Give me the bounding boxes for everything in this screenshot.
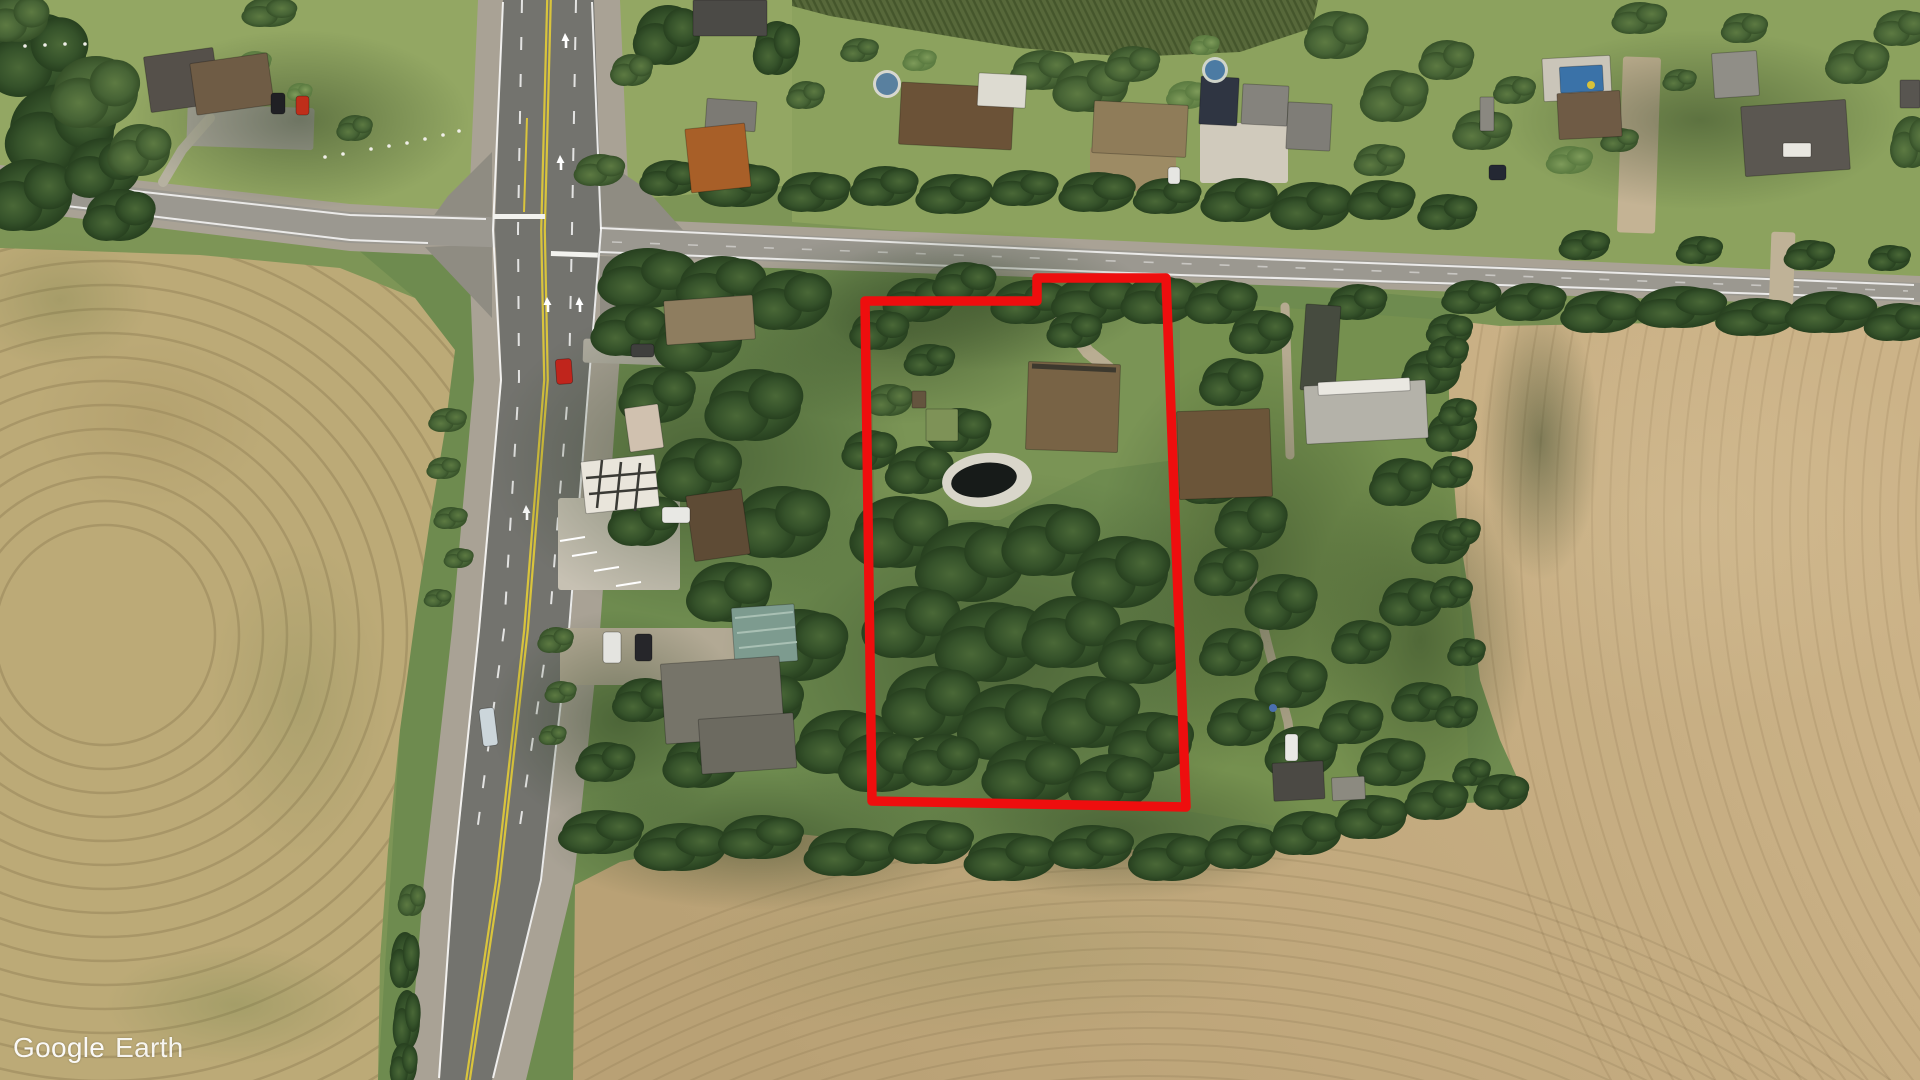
tree bbox=[1567, 147, 1593, 165]
building bbox=[977, 73, 1027, 108]
tree bbox=[810, 174, 851, 200]
tree bbox=[857, 39, 879, 55]
tree bbox=[1086, 827, 1134, 856]
building bbox=[912, 391, 926, 408]
tree bbox=[352, 116, 372, 133]
vehicle bbox=[662, 507, 690, 523]
google-earth-viewport[interactable]: GoogleEarth bbox=[0, 0, 1920, 1080]
vehicle bbox=[1489, 165, 1506, 180]
tree bbox=[653, 370, 696, 406]
tree bbox=[551, 726, 567, 739]
tree bbox=[803, 82, 825, 100]
tree bbox=[918, 50, 937, 64]
fence-post bbox=[43, 43, 47, 47]
tree bbox=[1390, 73, 1428, 107]
tree bbox=[1676, 288, 1728, 315]
tree bbox=[1449, 458, 1473, 479]
tree bbox=[1217, 282, 1258, 311]
tree bbox=[774, 24, 800, 59]
tree bbox=[1581, 232, 1610, 252]
fence-post bbox=[83, 42, 87, 46]
building bbox=[1025, 361, 1120, 452]
tree bbox=[602, 744, 636, 770]
shade-blob bbox=[1480, 300, 1600, 580]
vehicle bbox=[296, 96, 309, 115]
building bbox=[1711, 50, 1759, 98]
tree bbox=[1742, 15, 1768, 35]
tree bbox=[1377, 182, 1415, 208]
tree bbox=[1287, 659, 1328, 693]
tree bbox=[1678, 70, 1697, 84]
tree bbox=[457, 549, 474, 562]
tree bbox=[1129, 48, 1160, 71]
vehicle bbox=[603, 632, 621, 663]
building bbox=[686, 488, 751, 561]
tree bbox=[1223, 550, 1259, 581]
tree bbox=[1228, 630, 1264, 661]
watermark-product: Earth bbox=[115, 1032, 183, 1063]
tree bbox=[1093, 174, 1136, 200]
tree bbox=[775, 490, 830, 537]
tree bbox=[1354, 286, 1388, 309]
tree bbox=[1258, 312, 1294, 341]
building bbox=[1241, 84, 1289, 126]
satellite-map[interactable] bbox=[0, 0, 1920, 1080]
tree bbox=[950, 176, 993, 202]
tree bbox=[410, 886, 426, 907]
tree bbox=[1454, 698, 1478, 719]
tree bbox=[629, 56, 653, 77]
tree bbox=[756, 817, 804, 846]
tree bbox=[1469, 759, 1491, 777]
building bbox=[1559, 65, 1603, 93]
tree bbox=[1433, 782, 1469, 808]
building bbox=[190, 53, 274, 115]
tree bbox=[1459, 519, 1481, 537]
vehicle bbox=[1285, 734, 1298, 761]
tree bbox=[876, 312, 910, 338]
tree bbox=[1235, 180, 1278, 209]
tree bbox=[405, 993, 421, 1032]
tree bbox=[402, 1045, 418, 1074]
tree bbox=[926, 346, 955, 367]
tree bbox=[1498, 776, 1529, 799]
fence-post bbox=[405, 141, 409, 145]
tree bbox=[442, 458, 461, 472]
tree bbox=[1443, 42, 1474, 68]
tree bbox=[1237, 700, 1275, 731]
pool bbox=[1205, 60, 1225, 80]
tree bbox=[1306, 184, 1352, 215]
tree bbox=[724, 565, 772, 604]
tree bbox=[880, 168, 918, 194]
building bbox=[664, 295, 756, 345]
tree bbox=[1387, 740, 1425, 771]
tree bbox=[926, 822, 974, 851]
fence-post bbox=[457, 129, 461, 133]
tree bbox=[1449, 578, 1473, 599]
tree bbox=[1697, 237, 1723, 255]
tree bbox=[1636, 4, 1667, 25]
building bbox=[1741, 99, 1851, 176]
tree bbox=[445, 409, 467, 425]
tree bbox=[1468, 282, 1502, 304]
tree bbox=[1367, 797, 1408, 826]
fence-post bbox=[387, 144, 391, 148]
tree bbox=[136, 127, 172, 161]
tree bbox=[1512, 77, 1536, 95]
building bbox=[1300, 304, 1341, 392]
building bbox=[698, 713, 797, 774]
tree bbox=[1887, 246, 1911, 263]
building bbox=[624, 404, 664, 452]
building bbox=[1176, 408, 1272, 499]
stop-bar bbox=[493, 214, 545, 219]
tree bbox=[115, 192, 156, 226]
tree bbox=[1464, 639, 1486, 657]
pool bbox=[876, 73, 898, 95]
building bbox=[1199, 76, 1239, 126]
tree bbox=[449, 508, 468, 522]
pool bbox=[1269, 704, 1277, 712]
tree bbox=[559, 682, 577, 696]
tree bbox=[1203, 36, 1220, 49]
tree bbox=[1398, 460, 1434, 491]
fence-post bbox=[323, 155, 327, 159]
tree bbox=[90, 60, 140, 107]
building bbox=[1783, 143, 1811, 157]
tree bbox=[1455, 399, 1477, 417]
vehicle bbox=[635, 634, 652, 661]
tree bbox=[887, 386, 913, 407]
fence-post bbox=[423, 137, 427, 141]
tree bbox=[1115, 540, 1170, 587]
tree bbox=[298, 84, 312, 96]
tree bbox=[793, 613, 848, 660]
tree bbox=[1854, 42, 1890, 71]
driveway-pad bbox=[1200, 123, 1288, 183]
tree bbox=[596, 156, 625, 177]
tree bbox=[1444, 196, 1478, 219]
tree bbox=[694, 441, 742, 483]
building bbox=[1331, 776, 1365, 801]
vehicle bbox=[555, 358, 573, 384]
vehicle bbox=[271, 93, 285, 114]
building bbox=[1092, 101, 1189, 158]
building bbox=[685, 123, 751, 193]
tree bbox=[553, 628, 573, 645]
tree bbox=[1806, 242, 1835, 262]
building bbox=[1900, 80, 1920, 108]
tree bbox=[1445, 338, 1469, 359]
tree bbox=[1447, 316, 1473, 337]
tree bbox=[1020, 172, 1058, 195]
building bbox=[1272, 761, 1325, 802]
building bbox=[1286, 102, 1332, 151]
fence-post bbox=[341, 152, 345, 156]
tree bbox=[1358, 622, 1392, 651]
tree bbox=[937, 737, 980, 771]
tree bbox=[1228, 360, 1264, 391]
tree bbox=[1333, 13, 1369, 44]
vehicle bbox=[631, 344, 654, 357]
tree bbox=[1277, 577, 1318, 613]
tree bbox=[436, 590, 452, 602]
vehicle bbox=[1168, 167, 1180, 184]
fence-post bbox=[63, 42, 67, 46]
tree bbox=[1071, 314, 1102, 337]
fence-post bbox=[369, 147, 373, 151]
tree bbox=[1247, 497, 1288, 533]
terrain-wash bbox=[210, 540, 390, 860]
watermark-brand: Google bbox=[13, 1032, 105, 1063]
building bbox=[1557, 90, 1622, 139]
building bbox=[1480, 97, 1494, 131]
tree bbox=[1348, 702, 1384, 731]
tree bbox=[403, 935, 420, 971]
tree bbox=[1376, 146, 1405, 167]
google-earth-watermark: GoogleEarth bbox=[13, 1032, 184, 1064]
tree bbox=[748, 373, 803, 420]
tree bbox=[1025, 743, 1080, 785]
pool bbox=[1587, 81, 1595, 89]
tree bbox=[784, 273, 832, 312]
fence-post bbox=[23, 44, 27, 48]
building bbox=[693, 0, 767, 36]
tree bbox=[956, 410, 992, 439]
tree bbox=[1596, 293, 1642, 320]
building bbox=[926, 409, 958, 441]
tree bbox=[1527, 285, 1567, 310]
tree bbox=[596, 812, 644, 841]
tree bbox=[961, 264, 997, 290]
fence-post bbox=[441, 133, 445, 137]
tree bbox=[1106, 757, 1154, 793]
